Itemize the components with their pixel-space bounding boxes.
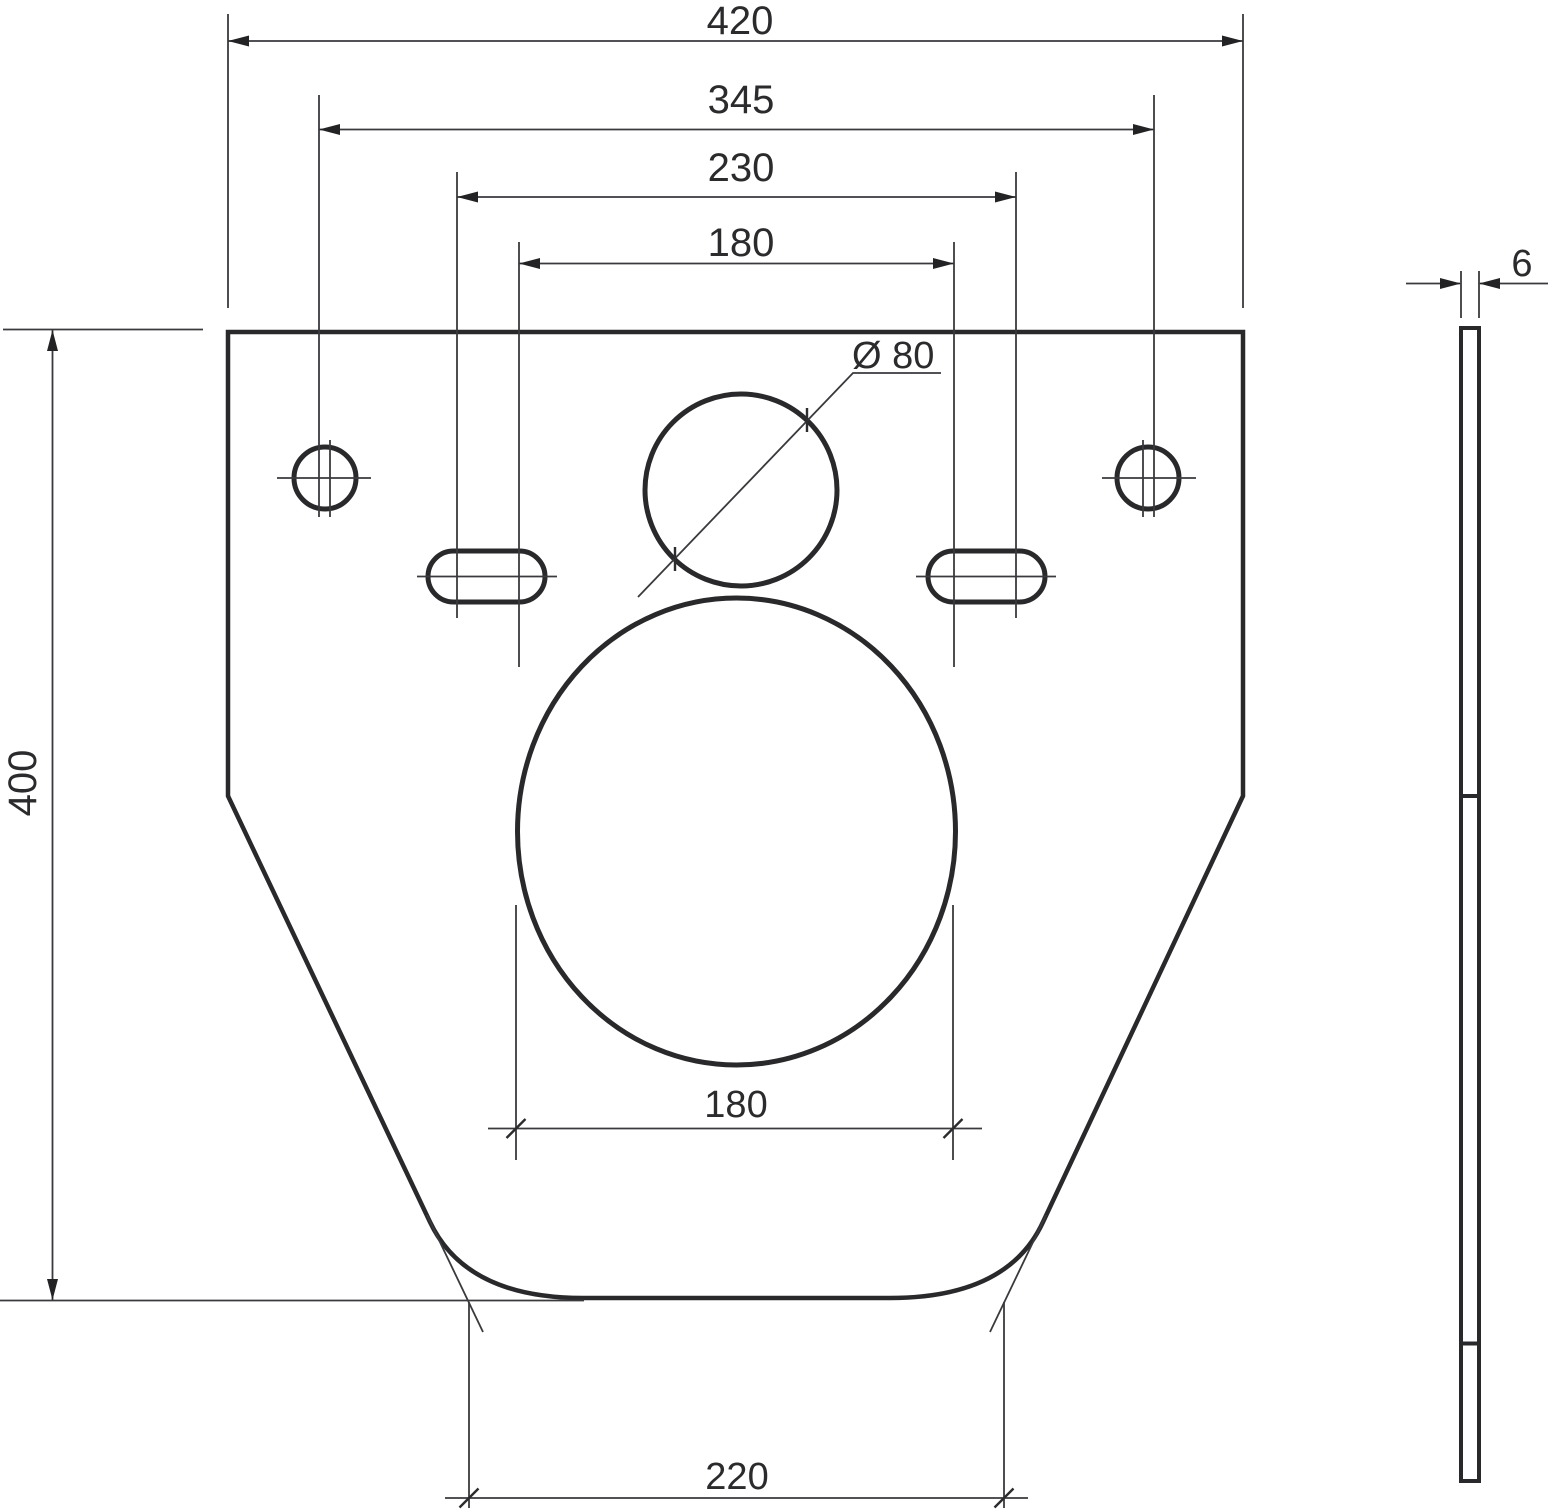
arrowhead-400-top (47, 330, 58, 351)
dim-label-230: 230 (708, 146, 775, 190)
arrowhead-345-right (1133, 124, 1154, 135)
arrowhead-6-left (1440, 278, 1461, 289)
side-view-profile (1461, 328, 1479, 1481)
dimension-220: 220 (427, 1215, 1046, 1508)
front-view: Ø 80 (228, 332, 1243, 1298)
side-view (1461, 328, 1479, 1481)
dim-label-180-bottom: 180 (704, 1084, 767, 1126)
plate-outline (228, 332, 1243, 1298)
pipe-hole-diameter-label: Ø 80 (852, 335, 934, 377)
arrowhead-420-left (228, 36, 249, 47)
dimension-345: 345 (319, 78, 1154, 517)
dim-label-400: 400 (1, 750, 45, 817)
dimension-230: 230 (457, 146, 1016, 618)
dim-label-180-top: 180 (708, 221, 775, 265)
arrowhead-420-right (1222, 36, 1243, 47)
dim-label-420: 420 (707, 0, 774, 43)
technical-drawing-page: Ø 80 420 345 230 180 (0, 0, 1550, 1510)
arrowhead-180top-right (933, 258, 954, 269)
arrowhead-400-bottom (47, 1279, 58, 1300)
arrowhead-345-left (319, 124, 340, 135)
dimension-6: 6 (1406, 243, 1548, 318)
dim-label-220: 220 (705, 1456, 768, 1498)
dim-label-6: 6 (1511, 243, 1532, 285)
arrowhead-6-right (1479, 278, 1500, 289)
mounting-plate-drawing: Ø 80 420 345 230 180 (0, 0, 1550, 1510)
arrowhead-230-right (995, 192, 1016, 203)
bowl-opening (518, 598, 956, 1065)
dimension-180-bottom: 180 (488, 905, 982, 1160)
dim-label-345: 345 (708, 78, 775, 122)
arrowhead-230-left (457, 192, 478, 203)
arrowhead-180top-left (519, 258, 540, 269)
